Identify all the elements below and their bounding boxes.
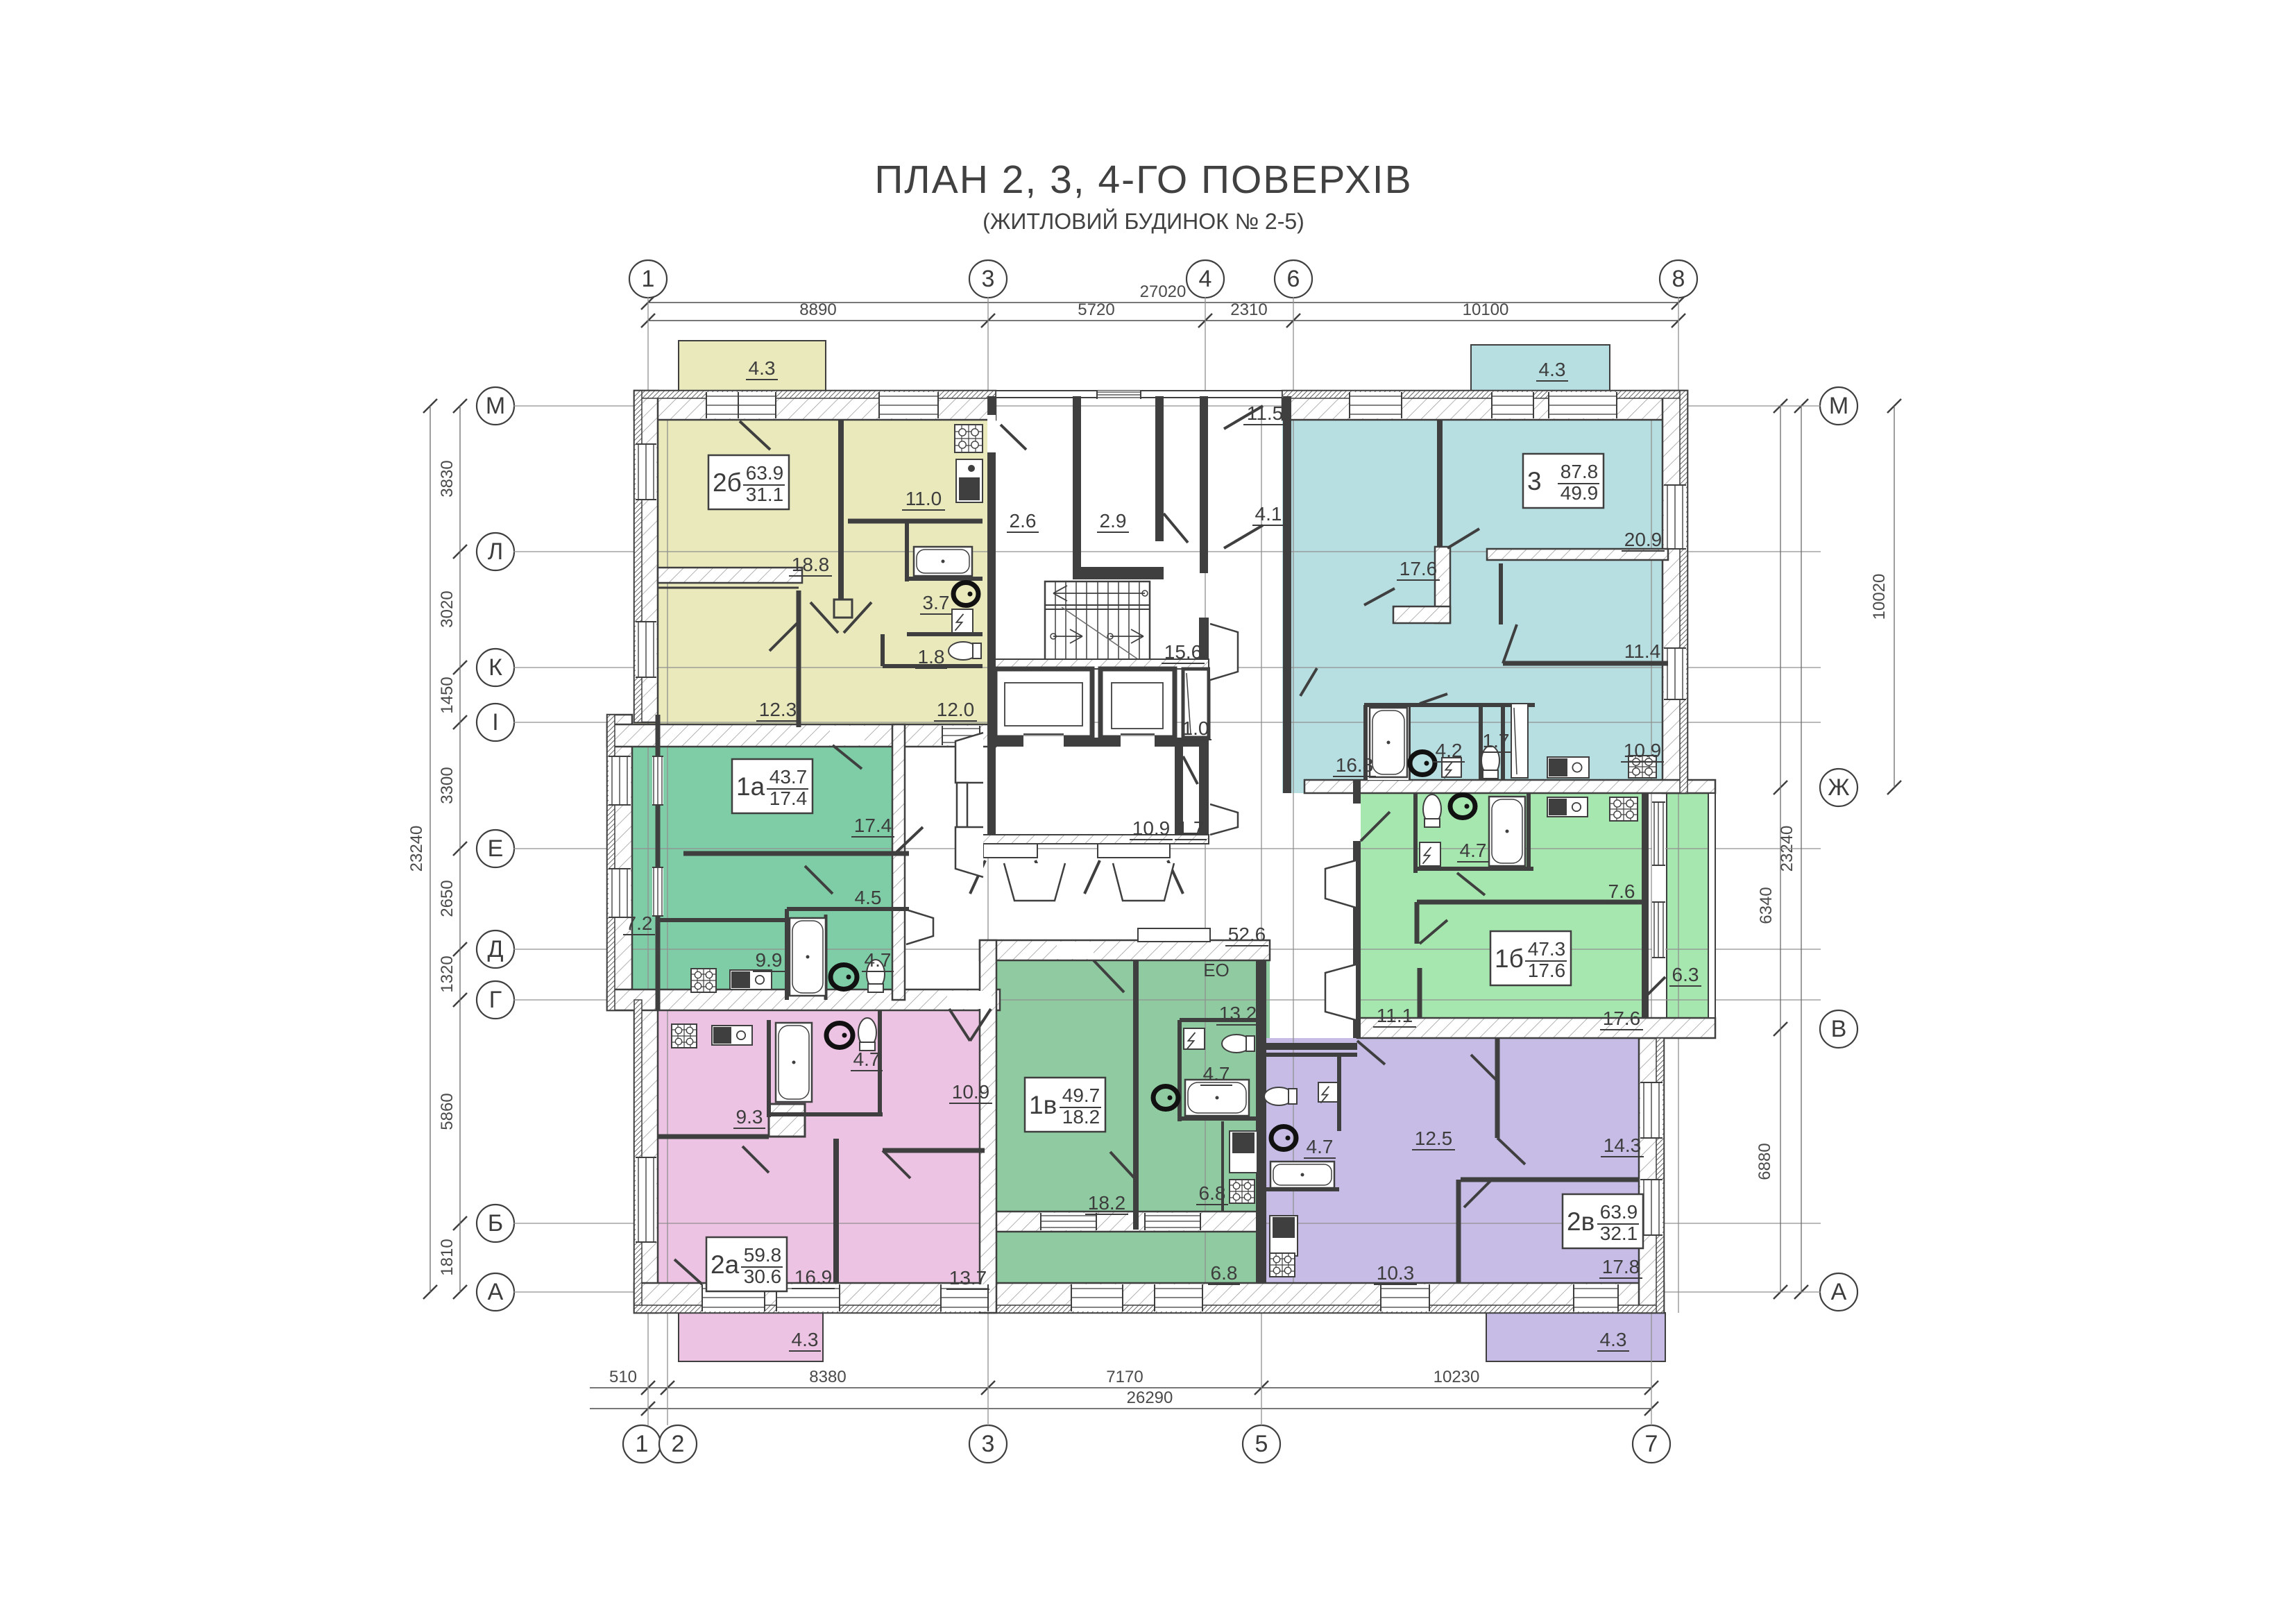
svg-text:2310: 2310 [1230,300,1267,319]
svg-text:13.7: 13.7 [949,1267,987,1289]
svg-text:В: В [1831,1016,1847,1042]
svg-text:9.9: 9.9 [756,949,783,971]
svg-text:4.3: 4.3 [1600,1329,1627,1350]
svg-text:12.0: 12.0 [937,699,975,720]
svg-text:20.9: 20.9 [1624,529,1663,550]
svg-text:63.9: 63.9 [746,462,784,484]
svg-text:15.6: 15.6 [1164,641,1202,663]
svg-text:12.3: 12.3 [759,699,797,720]
svg-text:А: А [1831,1279,1847,1305]
svg-text:18.2: 18.2 [1088,1192,1126,1214]
svg-text:І: І [492,709,498,736]
svg-text:1в: 1в [1029,1091,1057,1119]
svg-text:2а: 2а [711,1250,740,1279]
svg-text:7170: 7170 [1106,1368,1143,1386]
svg-text:2в: 2в [1567,1207,1595,1236]
svg-text:10.9: 10.9 [1132,817,1171,839]
svg-text:17.8: 17.8 [1602,1256,1640,1277]
svg-text:23240: 23240 [407,826,426,872]
svg-text:1.8: 1.8 [918,646,945,668]
svg-text:ПЛАН 2, 3, 4-ГО ПОВЕРХІВ: ПЛАН 2, 3, 4-ГО ПОВЕРХІВ [874,158,1412,202]
svg-text:4.7: 4.7 [1203,1063,1230,1085]
svg-text:16.9: 16.9 [794,1266,833,1288]
svg-text:2: 2 [672,1431,685,1457]
svg-text:3020: 3020 [438,590,457,627]
svg-text:4.2: 4.2 [1436,740,1463,761]
svg-text:4: 4 [1199,266,1212,292]
svg-text:3.7: 3.7 [923,592,950,613]
svg-text:1а: 1а [736,772,765,801]
svg-text:6.3: 6.3 [1672,964,1699,985]
svg-text:10.9: 10.9 [952,1081,990,1103]
svg-text:6.8: 6.8 [1211,1262,1238,1284]
svg-text:К: К [488,654,502,681]
svg-text:6.8: 6.8 [1199,1182,1226,1204]
svg-text:Д: Д [487,936,503,962]
svg-text:49.9: 49.9 [1561,482,1599,504]
svg-text:7: 7 [1645,1431,1658,1457]
svg-text:2.9: 2.9 [1100,510,1127,532]
svg-text:2б: 2б [713,468,742,497]
svg-text:4.7: 4.7 [1307,1136,1334,1157]
svg-text:12.5: 12.5 [1415,1128,1453,1149]
svg-text:8380: 8380 [809,1368,846,1386]
svg-text:11.1: 11.1 [1377,1005,1413,1026]
svg-text:10020: 10020 [1870,574,1889,620]
svg-text:18.8: 18.8 [792,554,830,575]
svg-text:27020: 27020 [1140,282,1187,301]
svg-text:3: 3 [982,1431,995,1457]
svg-text:1: 1 [642,266,655,292]
svg-text:Г: Г [489,987,502,1013]
svg-text:4.7: 4.7 [1460,840,1487,861]
svg-text:3300: 3300 [438,767,457,804]
svg-text:4.3: 4.3 [1539,359,1566,380]
svg-text:18.2: 18.2 [1062,1106,1100,1128]
svg-text:63.9: 63.9 [1600,1201,1638,1223]
svg-text:ЕО: ЕО [1203,960,1230,980]
svg-text:7.2: 7.2 [626,912,653,934]
svg-text:5: 5 [1255,1431,1268,1457]
svg-text:31.1: 31.1 [746,484,784,505]
svg-text:49.7: 49.7 [1062,1085,1100,1106]
svg-text:17.6: 17.6 [1528,960,1566,981]
svg-text:10.3: 10.3 [1377,1262,1415,1284]
svg-text:Е: Е [488,835,504,862]
svg-text:Ж: Ж [1828,774,1849,801]
svg-text:А: А [488,1279,504,1305]
svg-text:47.3: 47.3 [1528,938,1566,960]
svg-text:1450: 1450 [438,677,457,713]
svg-text:11.0: 11.0 [905,488,942,509]
svg-text:4.1: 4.1 [1255,503,1282,525]
svg-text:10100: 10100 [1463,300,1509,319]
svg-text:7.6: 7.6 [1608,881,1635,902]
svg-text:43.7: 43.7 [769,766,808,788]
svg-text:17.4: 17.4 [769,788,808,809]
svg-text:9.3: 9.3 [736,1106,763,1128]
svg-text:14.3: 14.3 [1604,1135,1642,1156]
svg-text:32.1: 32.1 [1600,1223,1638,1244]
svg-text:17.4: 17.4 [854,815,892,836]
svg-text:4.7: 4.7 [853,1048,881,1070]
svg-text:(ЖИТЛОВИЙ БУДИНОК № 2-5): (ЖИТЛОВИЙ БУДИНОК № 2-5) [983,209,1304,234]
svg-text:5860: 5860 [438,1093,457,1130]
svg-text:3830: 3830 [438,460,457,497]
svg-text:3: 3 [1527,467,1542,495]
svg-text:8: 8 [1672,266,1685,292]
svg-text:87.8: 87.8 [1561,461,1599,482]
svg-text:М: М [486,393,505,419]
svg-text:1320: 1320 [438,955,457,992]
svg-text:Б: Б [488,1210,503,1237]
svg-text:1б: 1б [1495,944,1524,973]
svg-text:4.5: 4.5 [855,887,882,908]
svg-text:М: М [1829,393,1848,419]
svg-text:4.3: 4.3 [749,357,776,379]
svg-text:1810: 1810 [438,1239,457,1275]
svg-text:4.7: 4.7 [865,949,892,971]
svg-text:16.8: 16.8 [1336,754,1374,776]
svg-text:3: 3 [982,266,995,292]
svg-text:17.6: 17.6 [1603,1008,1641,1029]
svg-text:59.8: 59.8 [744,1244,782,1266]
svg-text:10.9: 10.9 [1624,740,1662,761]
svg-text:30.6: 30.6 [744,1266,782,1287]
svg-text:10230: 10230 [1434,1368,1480,1386]
svg-text:6880: 6880 [1755,1143,1774,1180]
svg-text:2.6: 2.6 [1010,510,1037,532]
svg-text:52.6: 52.6 [1228,924,1266,945]
svg-text:2650: 2650 [438,880,457,917]
svg-text:26290: 26290 [1127,1388,1173,1407]
svg-text:8890: 8890 [799,300,836,319]
svg-text:1: 1 [636,1431,649,1457]
svg-text:4.3: 4.3 [792,1329,819,1350]
svg-text:1.7: 1.7 [1177,817,1205,839]
svg-text:5720: 5720 [1078,300,1114,319]
svg-text:510: 510 [609,1368,637,1386]
svg-text:17.6: 17.6 [1400,558,1438,579]
svg-text:6: 6 [1287,266,1300,292]
svg-text:1.7: 1.7 [1483,730,1510,751]
svg-text:1.0: 1.0 [1182,717,1209,739]
svg-text:6340: 6340 [1757,887,1776,924]
svg-text:11.4: 11.4 [1624,640,1660,662]
svg-text:Л: Л [488,538,503,565]
svg-text:13.2: 13.2 [1219,1003,1257,1024]
